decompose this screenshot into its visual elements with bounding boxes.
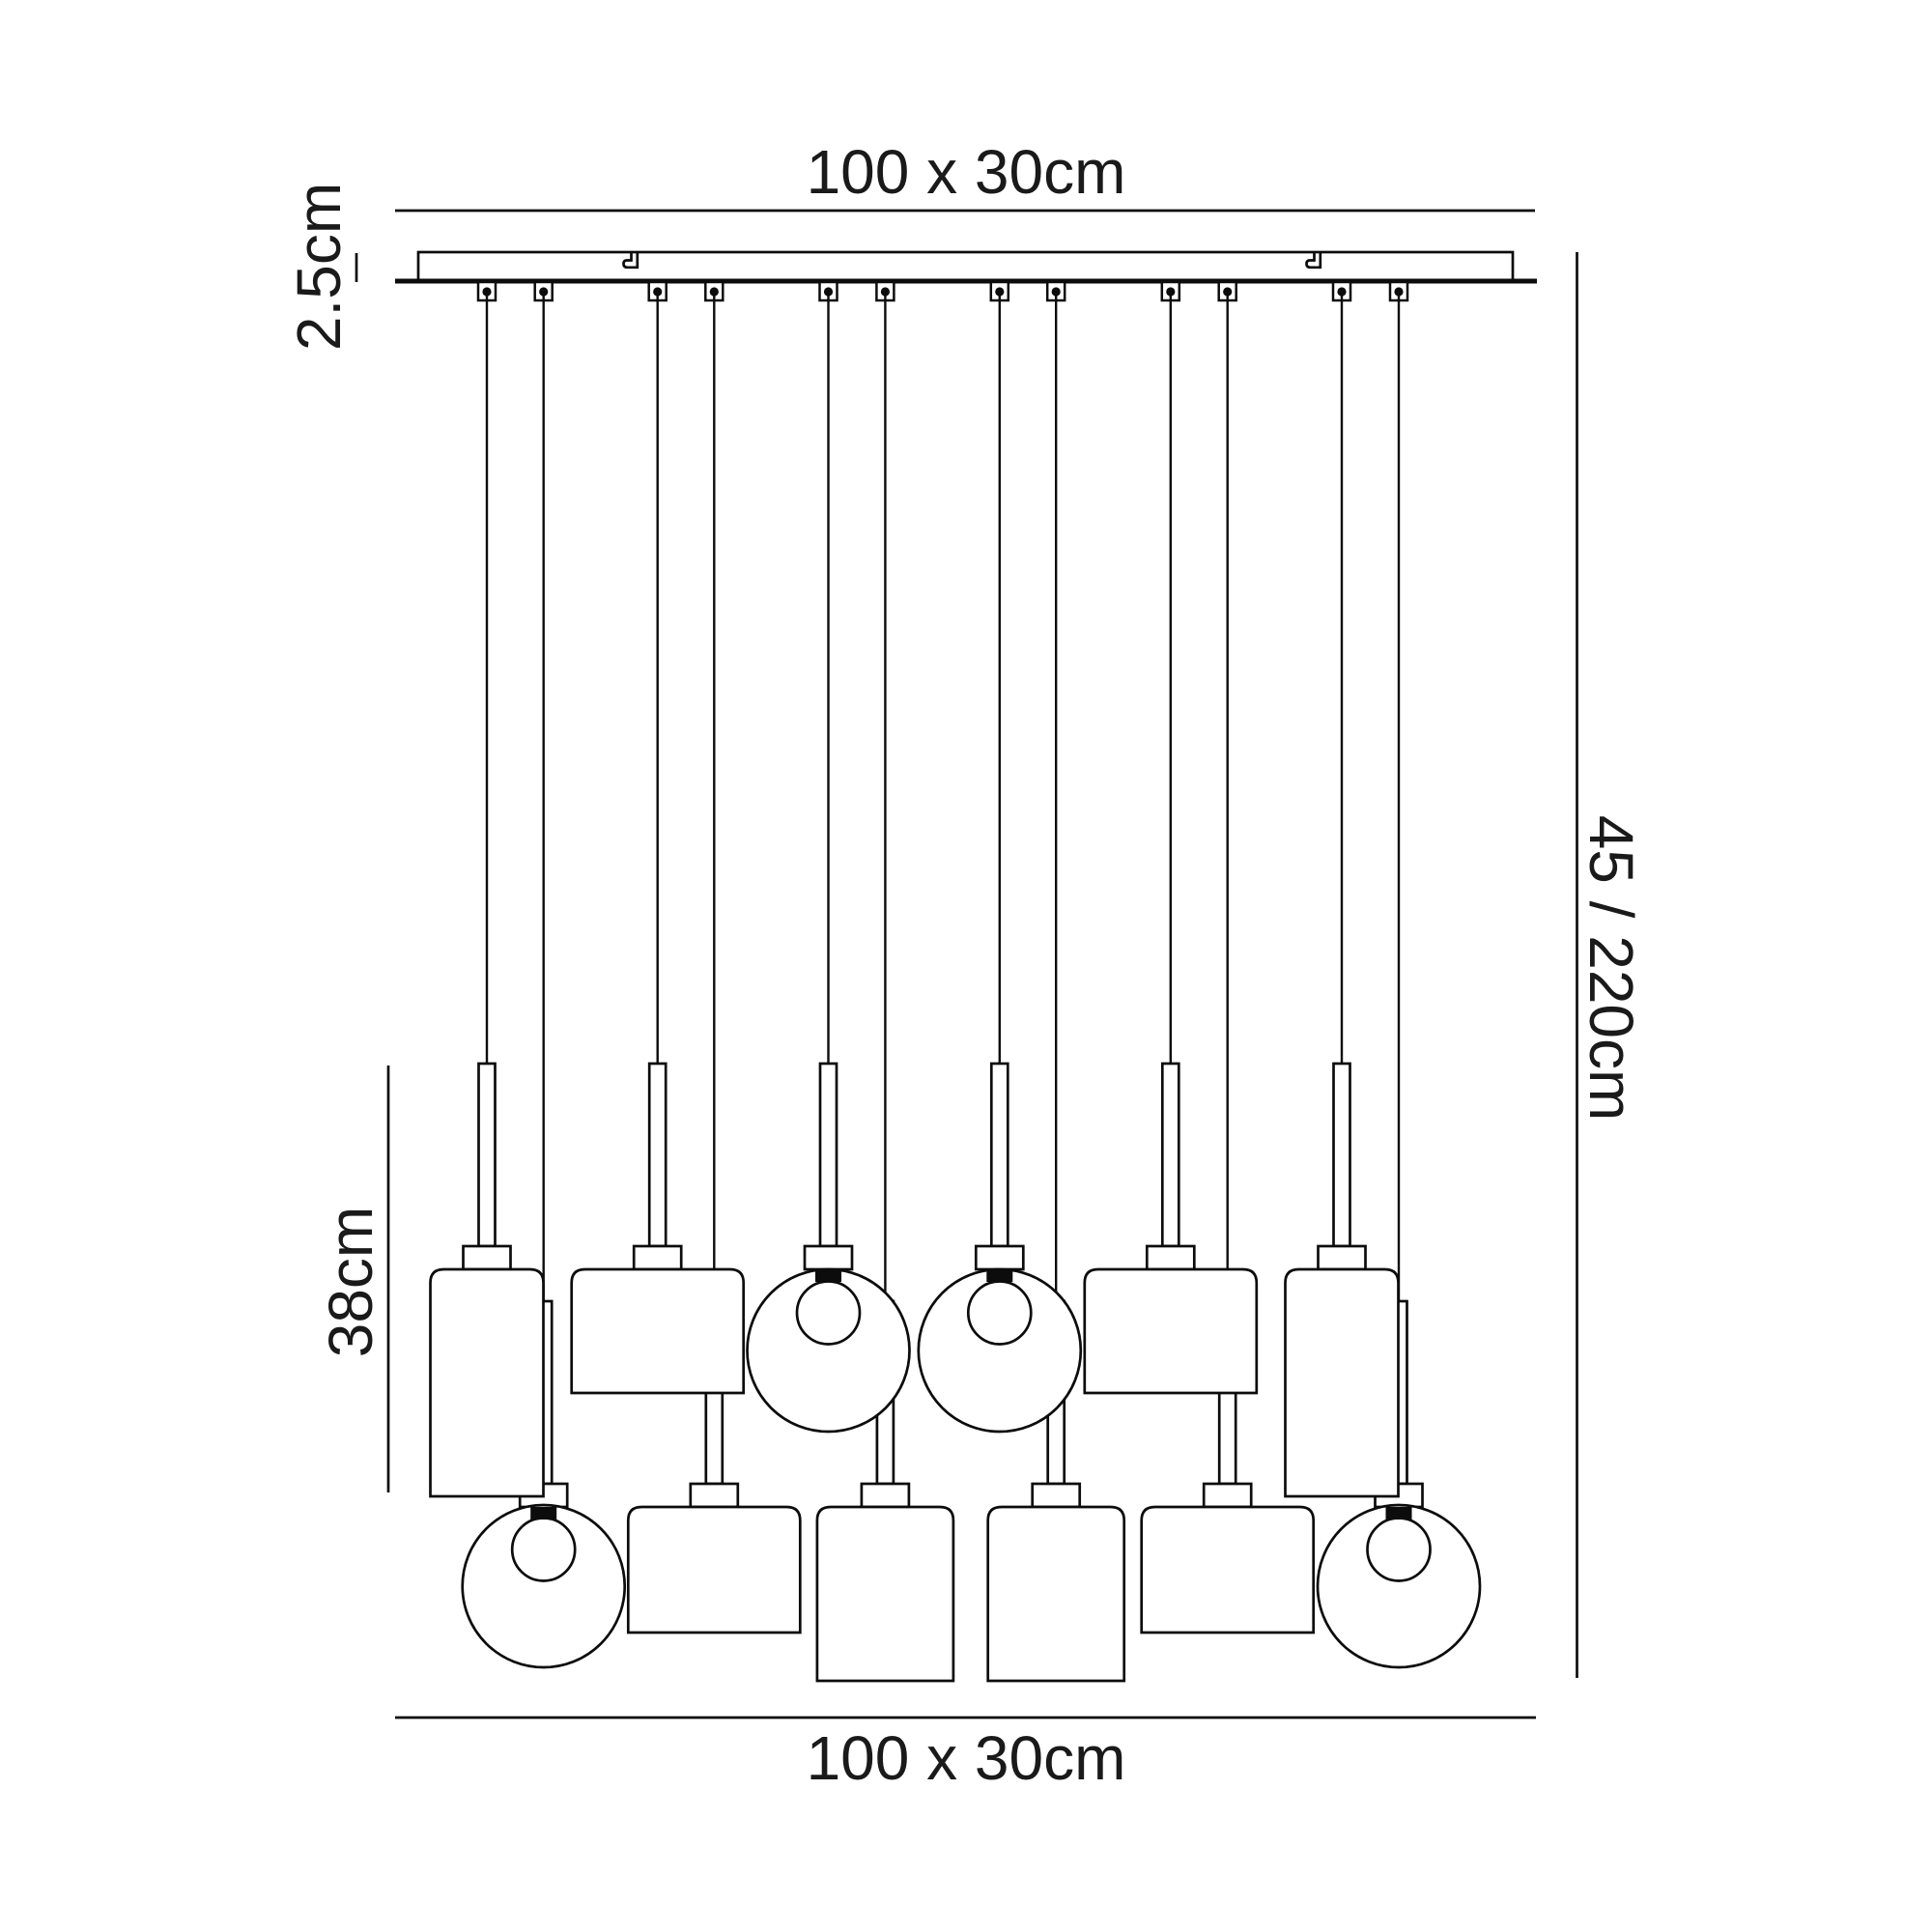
- svg-text:100 x 30cm: 100 x 30cm: [807, 137, 1126, 207]
- svg-text:45 / 220cm: 45 / 220cm: [1577, 815, 1646, 1122]
- svg-text:100 x 30cm: 100 x 30cm: [807, 1723, 1126, 1793]
- svg-text:2.5cm: 2.5cm: [284, 183, 354, 351]
- svg-text:38cm: 38cm: [316, 1207, 385, 1358]
